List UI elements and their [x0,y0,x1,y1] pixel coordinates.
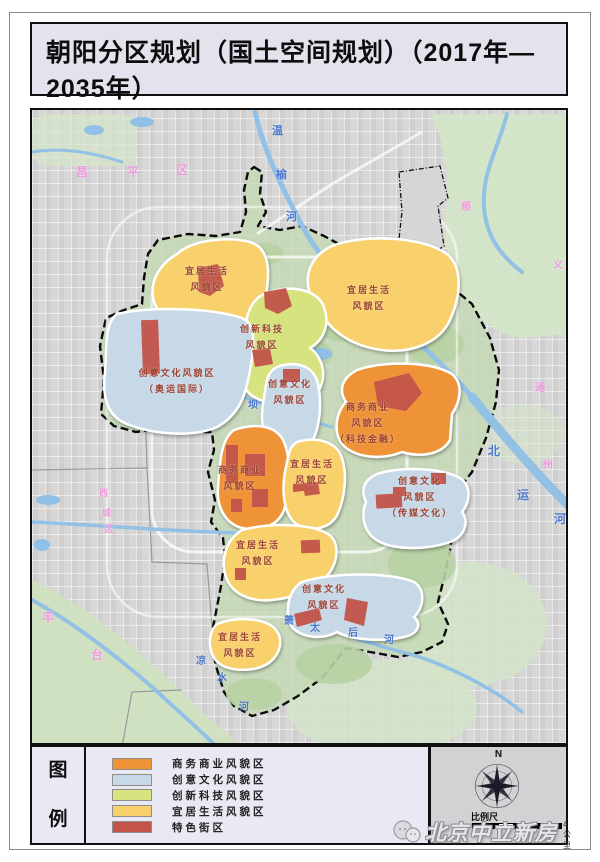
place-label: 运 [517,486,529,503]
place-label: 台 [91,646,103,663]
place-label: 坝 [248,396,258,411]
place-label: 河 [286,208,297,224]
place-label: 河 [384,631,394,646]
place-label: 平 [127,163,139,180]
legend-item: 特色街区 [112,819,422,835]
watermark: 北京中立新房 [392,817,557,847]
zone-label: 创意文化 风貌区 （传媒文化） [370,474,470,521]
place-label: 后 [348,624,358,639]
legend-item: 宜居生活风貌区 [112,803,422,819]
place-label: 义 [553,256,563,271]
compass-rose-icon [471,760,523,812]
place-label: 凉 [196,652,206,667]
zone-label: 宜居生活 风貌区 [195,630,285,662]
legend-label: 特色街区 [172,820,226,835]
legend-swatch [112,774,152,786]
watermark-text: 北京中立新房 [425,817,557,847]
legend-label: 创新科技风貌区 [172,788,267,803]
place-label: 通 [535,379,545,394]
zone-label: 宜居生活 风貌区 [213,538,303,570]
zone-label: 创意文化风貌区 （奥运国际） [117,366,237,398]
legend-item: 商务商业风貌区 [112,756,422,772]
place-label: 城 [102,506,111,519]
title-box: 朝阳分区规划（国土空间规划）（2017年—2035年） 图15 风貌分区规划图 [30,22,568,96]
place-label: 河 [554,510,566,527]
legend-box: 图 例 商务商业风貌区 创意文化风貌区 创新科技风貌区 宜居生活风貌区 特色街区 [30,745,430,845]
scale-distance: 4公里 [563,820,571,851]
legend-swatch [112,789,152,801]
place-label: 州 [543,456,553,471]
zone-label: 宜居生活 风貌区 [324,283,414,315]
map-canvas: 宜居生活 风貌区 宜居生活 风貌区 创新科技 风貌区 创意文化风貌区 （奥运国际… [30,108,568,745]
zone-label: 宜居生活 风貌区 [162,264,252,296]
place-label: 顺 [461,198,471,213]
place-label: 榆 [276,166,287,182]
zone-label: 商务商业 风貌区 （科技金融） [318,400,418,447]
zone-label: 创意文化 风貌区 [279,582,369,614]
place-label: 温 [272,122,283,138]
place-label: 河 [239,698,249,713]
legend-swatch [112,758,152,770]
legend-item: 创新科技风貌区 [112,788,422,804]
legend-label: 商务商业风貌区 [172,756,267,771]
place-label: 太 [310,619,320,634]
place-label: 萧 [284,612,294,627]
chat-bubbles-icon [392,819,422,845]
place-label: 水 [217,669,227,684]
legend-swatch [112,805,152,817]
place-label: 昌 [76,163,88,180]
legend-swatch [112,821,152,833]
place-label: 北 [488,442,500,459]
page-title: 朝阳分区规划（国土空间规划）（2017年—2035年） [46,33,566,105]
place-label: 西 [99,486,108,499]
legend-label: 宜居生活风貌区 [172,804,267,819]
place-label: 区 [176,161,188,178]
legend-heading: 图 例 [32,747,86,843]
legend-item: 创意文化风貌区 [112,772,422,788]
map-graphics [30,108,568,745]
place-label: 丰 [42,608,54,625]
legend-label: 创意文化风貌区 [172,772,267,787]
north-label: N [431,749,566,760]
zone-label: 宜居生活 风貌区 [267,457,357,489]
place-label: 区 [104,522,113,535]
zone-label: 创新科技 风貌区 [217,322,307,354]
